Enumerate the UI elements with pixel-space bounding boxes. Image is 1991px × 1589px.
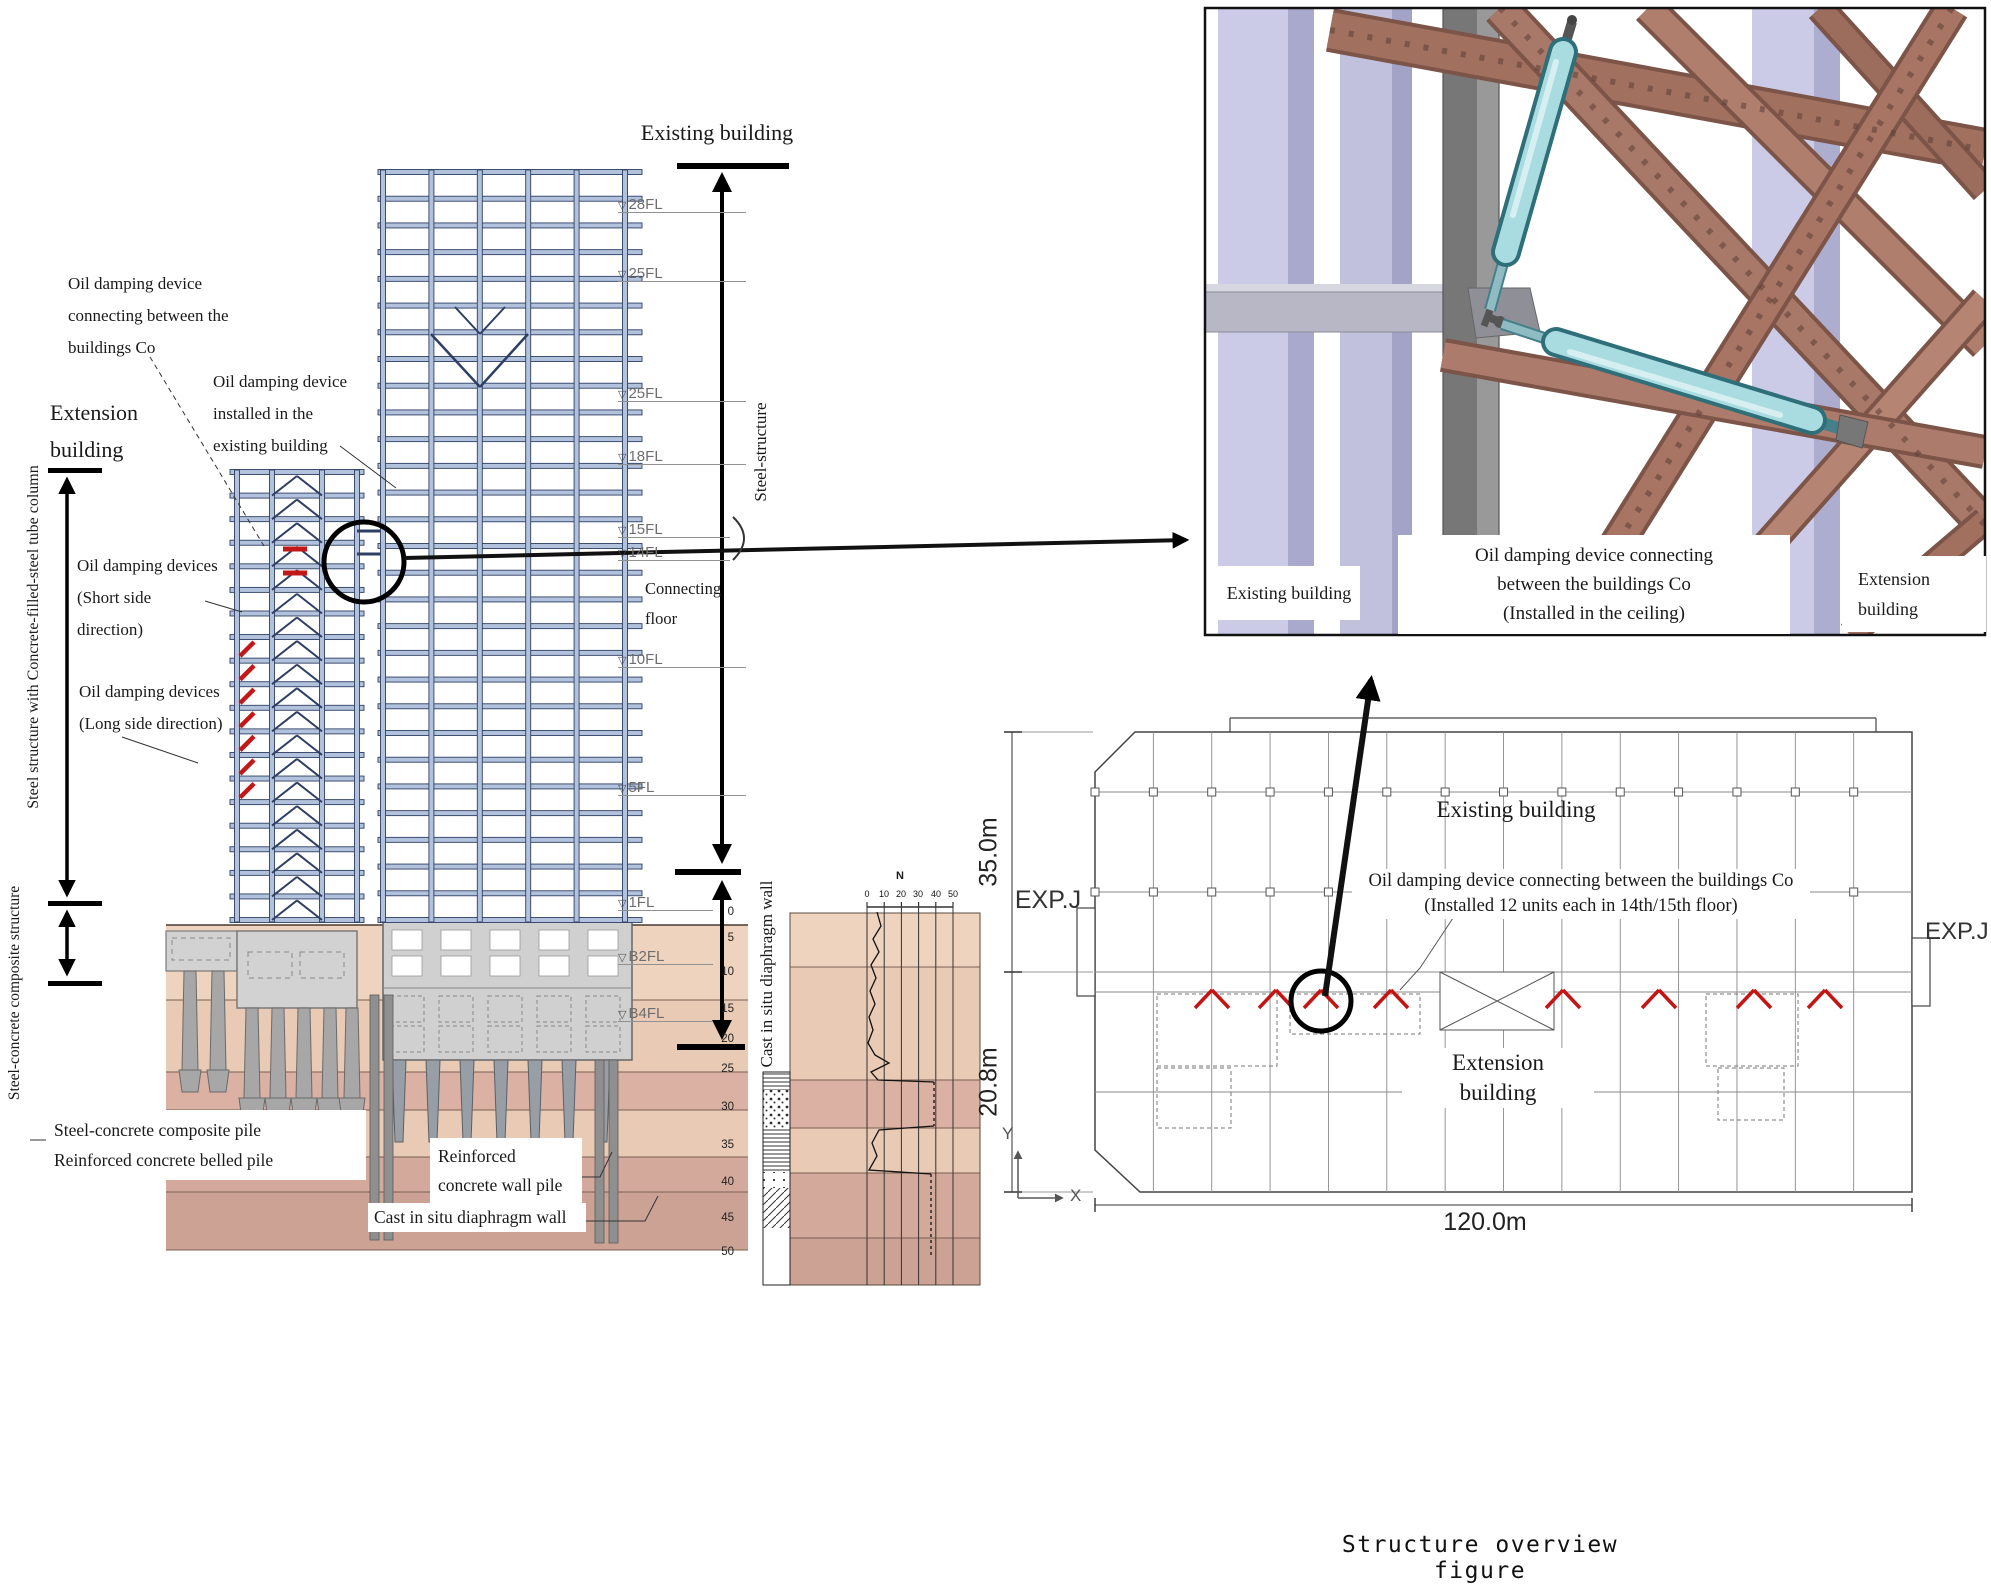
floor-level-marker: ▽ 10FL [618,645,746,668]
exp-joint-left-label: EXP.J [1006,886,1090,915]
label-line: Reinforced concrete belled pile [54,1145,366,1175]
box-wall-pile-label: Reinforced concrete wall pile [430,1138,582,1204]
label-line: direction) [77,614,218,646]
floor-label: 1FL [628,895,654,910]
floor-label: 15FL [628,522,662,537]
depth-tick: 50 [698,1246,734,1258]
plan-damper-annotation: Oil damping device connecting between th… [1352,869,1810,919]
vertical-label-diaphragm-wall: Cast in situ diaphragm wall [757,881,777,1068]
plan-axis-y-label: Y [1002,1124,1013,1144]
depth-tick: 40 [698,1176,734,1188]
label-line: Extension [1858,564,1986,594]
label-dampers-short-side: Oil damping devices (Short side directio… [77,550,218,646]
box-diaphragm-wall-label: Cast in situ diaphragm wall [368,1203,586,1232]
depth-tick: 0 [698,906,734,918]
plan-dim-lower: 20.8m [975,1047,1004,1116]
exp-joint-right-label: EXP.J [1925,918,1991,946]
floor-label: B4FL [628,1006,664,1021]
plan-dim-upper: 35.0m [975,817,1004,886]
floor-level-marker: ▽ 25FL [618,379,746,402]
label-line: buildings Co [68,332,229,364]
depth-tick: 25 [698,1063,734,1075]
detail-existing-building-label: Existing building [1218,566,1360,620]
floor-label: 14FL [628,545,662,560]
floor-label: 25FL [628,386,662,401]
extension-title-line1: Extension [50,394,138,431]
level-triangle-icon: ▽ [618,655,626,667]
label-line: Oil damping devices [79,676,223,708]
depth-tick: 30 [698,1101,734,1113]
depth-tick: 10 [698,966,734,978]
floor-label: 18FL [628,449,662,464]
floor-level-marker: ▽ 14FL [618,538,730,561]
level-triangle-icon: ▽ [618,269,626,281]
floor-label: 25FL [628,266,662,281]
floor-label: 5FL [628,780,654,795]
level-triangle-icon: ▽ [618,200,626,212]
floor-level-marker: ▽ 28FL [618,190,746,213]
diagram-canvas [0,0,1991,1589]
plan-existing-building-label: Existing building [1410,797,1622,823]
label-line: installed in the [213,398,347,430]
figure-caption: Structure overview figure [1290,1532,1670,1584]
level-triangle-icon: ▽ [618,898,626,910]
borehole-n-label: N [890,870,910,882]
label-damper-connecting: Oil damping device connecting between th… [68,268,229,364]
level-triangle-icon: ▽ [618,548,626,560]
label-line: concrete wall pile [438,1171,580,1200]
floor-level-marker: ▽ 15FL [618,515,730,538]
level-triangle-icon: ▽ [618,783,626,795]
plan-view-drawing [1004,718,1930,1212]
level-triangle-icon: ▽ [618,389,626,401]
label-line: Oil damping device [213,366,347,398]
floor-level-marker: ▽ 25FL [618,259,746,282]
floor-label: B2FL [628,949,664,964]
label-line: Oil damping device [68,268,229,300]
depth-tick: 35 [698,1139,734,1151]
label-line: (Long side direction) [79,708,223,740]
n-scale-tick: 50 [942,889,964,899]
label-line: Steel-concrete composite pile [54,1115,366,1145]
plan-axis-x-label: X [1070,1186,1081,1206]
existing-building-title: Existing building [617,120,817,146]
label-line: Extension [1402,1048,1594,1078]
floor-level-marker: ▽ 5FL [618,773,746,796]
detail-extension-building-label: Extension building [1842,556,1986,632]
label-line: connecting between the [68,300,229,332]
label-line: (Short side [77,582,218,614]
label-line: (Installed in the ceiling) [1398,599,1790,628]
plan-extension-building-label: Extension building [1402,1048,1594,1108]
existing-tower-drawing [378,170,642,923]
structure-overview-figure: Existing building Extension building Oil… [0,0,1991,1589]
level-triangle-icon: ▽ [618,1009,626,1021]
label-line: Reinforced [438,1142,580,1171]
floor-label: 28FL [628,197,662,212]
label-line: floor [645,604,721,634]
floor-level-marker: ▽ 18FL [618,442,746,465]
floor-label: 10FL [628,652,662,667]
floor-level-marker: ▽ B2FL [618,942,713,965]
depth-tick: 20 [698,1033,734,1045]
label-line: Connecting [645,574,721,604]
box-composite-pile-labels: Steel-concrete composite pile Reinforced… [46,1110,366,1180]
label-dampers-long-side: Oil damping devices (Long side direction… [79,676,223,740]
level-triangle-icon: ▽ [618,525,626,537]
vertical-label-steel-structure: Steel-structure [751,402,771,501]
label-line: between the buildings Co [1398,570,1790,599]
label-line: Oil damping device connecting [1398,541,1790,570]
label-damper-installed: Oil damping device installed in the exis… [213,366,347,462]
extension-title-line2: building [50,431,138,468]
detail-damper-label: Oil damping device connecting between th… [1398,535,1790,634]
plan-dim-width: 120.0m [1419,1208,1551,1237]
level-triangle-icon: ▽ [618,452,626,464]
label-line: building [1402,1078,1594,1108]
depth-tick: 45 [698,1212,734,1224]
label-line: Oil damping devices [77,550,218,582]
label-line: existing building [213,430,347,462]
label-line: (Installed 12 units each in 14th/15th fl… [1352,894,1810,919]
depth-tick: 15 [698,1003,734,1015]
label-line: Oil damping device connecting between th… [1352,869,1810,894]
label-connecting-floor: Connecting floor [645,574,721,634]
label-line: building [1858,594,1986,624]
level-triangle-icon: ▽ [618,952,626,964]
extension-tower-drawing [230,470,383,923]
vertical-label-cft-structure: Steel structure with Concrete-filled-ste… [25,465,43,808]
extension-building-title: Extension building [50,394,138,468]
depth-tick: 5 [698,932,734,944]
vertical-label-src-structure: Steel-concrete composite structure [6,886,24,1100]
